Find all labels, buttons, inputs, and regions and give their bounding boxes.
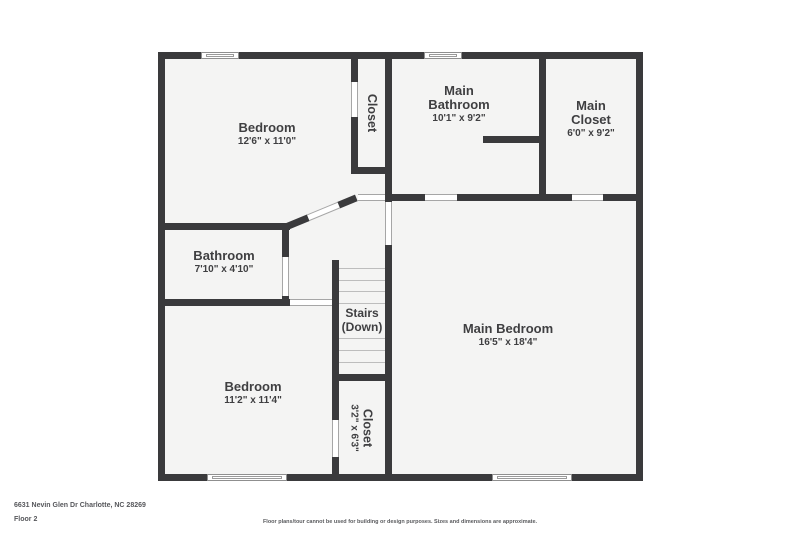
room-dims: 10'1" x 9'2"	[428, 112, 489, 125]
wall-closet-top-left	[351, 59, 358, 82]
room-dims: 3'2" x 6'3"	[348, 404, 361, 452]
stair-step-line	[339, 291, 385, 292]
window-main-bedroom	[492, 474, 572, 481]
outer-wall-right	[636, 52, 643, 481]
room-name: Main Bedroom	[463, 322, 553, 336]
stair-step-line	[339, 338, 385, 339]
door-closet-bottom	[332, 420, 339, 457]
wall-stairs-bottom	[332, 374, 392, 381]
room-name: Bathroom	[193, 249, 254, 263]
window-main-bathroom	[424, 52, 462, 59]
stair-step-line	[339, 362, 385, 363]
door-main-bedroom	[385, 202, 392, 245]
door-bedroom-top-left	[307, 202, 340, 221]
room-label-bathroom: Bathroom 7'10" x 4'10"	[193, 249, 254, 276]
wall-closet-top-left	[351, 117, 358, 167]
window-bedroom-bottom-left	[207, 474, 287, 481]
room-label-main-bathroom: Main Bathroom 10'1" x 9'2"	[428, 84, 489, 125]
wall-center-upper	[385, 59, 392, 202]
room-name: Closet	[365, 94, 379, 132]
wall-main-closet-left	[539, 59, 546, 194]
stairs-label: Stairs (Down)	[339, 304, 385, 336]
room-name: Bedroom	[238, 121, 296, 135]
floor-plan: Stairs (Down) Bedroom 12'6" x 11'0" Main…	[158, 52, 643, 481]
room-name: Closet	[567, 113, 615, 127]
footer-address: 6631 Nevin Glen Dr Charlotte, NC 28269	[14, 502, 146, 509]
stair-step-line	[339, 268, 385, 269]
wall-diagonal-segment	[286, 214, 310, 229]
stair-step-line	[339, 280, 385, 281]
wall-closet-bottom-left	[332, 457, 339, 474]
door-main-closet	[572, 194, 603, 201]
wall-main-bedroom-top	[603, 194, 636, 201]
footer-disclaimer: Floor plans/tour cannot be used for buil…	[263, 519, 537, 525]
wall-diagonal	[286, 195, 358, 230]
wall-main-bathroom-stub	[483, 136, 546, 143]
floor-plan-page: Stairs (Down) Bedroom 12'6" x 11'0" Main…	[0, 0, 800, 533]
stairs-label-line1: Stairs	[339, 306, 385, 320]
room-name: Bathroom	[428, 98, 489, 112]
room-name: Closet	[361, 404, 375, 452]
room-dims: 11'2" x 11'4"	[224, 394, 282, 407]
room-dims: 7'10" x 4'10"	[193, 263, 254, 276]
window-bedroom-top-left	[201, 52, 239, 59]
room-name: Main	[428, 84, 489, 98]
wall-center-lower	[385, 245, 392, 474]
stairs-label-line2: (Down)	[339, 320, 385, 334]
door-landing	[358, 194, 385, 201]
wall-diagonal-segment	[337, 195, 357, 209]
room-dims: 6'0" x 9'2"	[567, 127, 615, 140]
wall-main-bedroom-top	[457, 194, 572, 201]
wall-bathroom-bottom	[158, 299, 290, 306]
wall-stairs-left	[332, 260, 339, 381]
door-bathroom	[282, 257, 289, 296]
door-main-bathroom	[425, 194, 457, 201]
room-label-main-closet: Main Closet 6'0" x 9'2"	[567, 99, 615, 140]
wall-closet-bottom-left	[332, 381, 339, 420]
room-name: Bedroom	[224, 380, 282, 394]
room-dims: 16'5" x 18'4"	[463, 336, 553, 349]
room-dims: 12'6" x 11'0"	[238, 135, 296, 148]
room-name: Main	[567, 99, 615, 113]
footer-floor-label: Floor 2	[14, 516, 37, 523]
wall-bathroom-right	[282, 230, 289, 257]
room-label-closet-top: Closet	[365, 94, 379, 132]
room-label-closet-bottom: Closet 3'2" x 6'3"	[348, 404, 375, 452]
outer-wall-left	[158, 52, 165, 481]
room-label-bedroom-bottom-left: Bedroom 11'2" x 11'4"	[224, 380, 282, 407]
wall-main-bedroom-top	[392, 194, 425, 201]
wall-bedroom1-bottom	[158, 223, 290, 230]
door-closet-top	[351, 82, 358, 117]
room-label-bedroom-top-left: Bedroom 12'6" x 11'0"	[238, 121, 296, 148]
door-bedroom-bottom-left	[290, 299, 332, 306]
stair-step-line	[339, 350, 385, 351]
room-label-main-bedroom: Main Bedroom 16'5" x 18'4"	[463, 322, 553, 349]
